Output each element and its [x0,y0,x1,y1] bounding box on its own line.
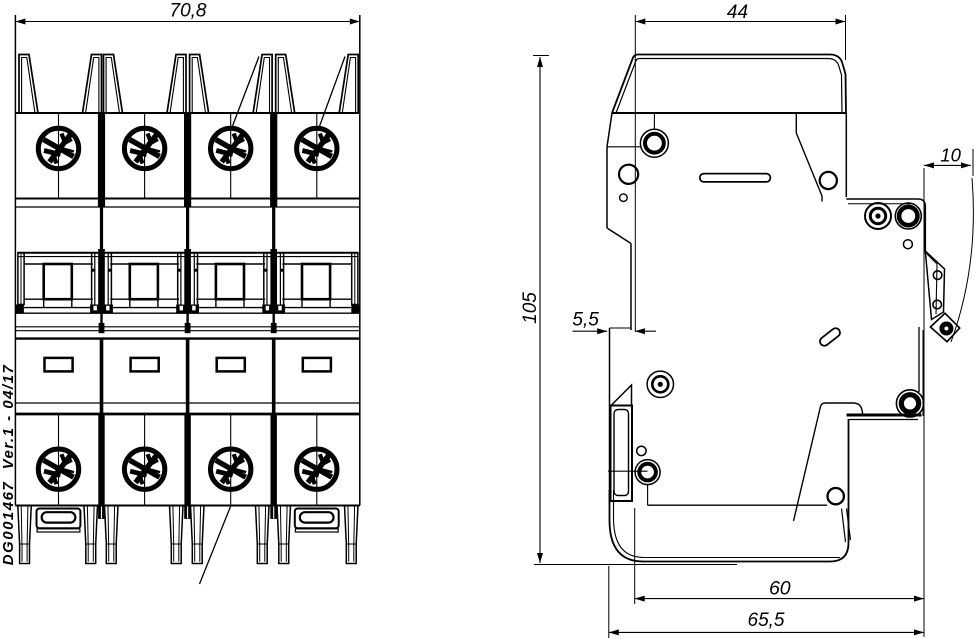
svg-text:65,5: 65,5 [748,610,785,631]
svg-text:DG001467 Ver.1 - 04/17: DG001467 Ver.1 - 04/17 [0,364,17,566]
svg-text:70,8: 70,8 [170,1,207,22]
svg-text:44: 44 [727,2,748,23]
svg-text:5,5: 5,5 [572,310,599,331]
svg-text:60: 60 [769,577,791,599]
svg-text:105: 105 [520,292,541,324]
svg-text:10: 10 [940,145,961,166]
